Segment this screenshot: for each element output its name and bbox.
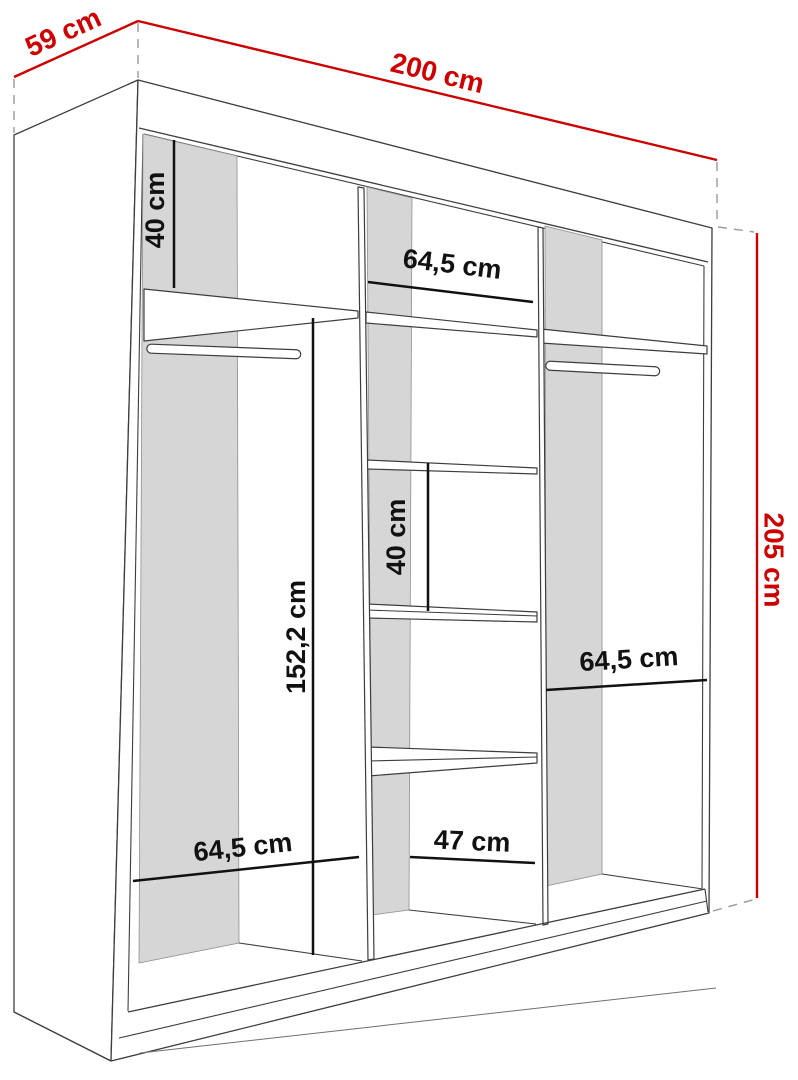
left-top-shelf-gap-label: 40 cm	[140, 172, 170, 249]
middle-bottom-width-label: 47 cm	[433, 824, 511, 857]
height-dimension-label: 205 cm	[759, 513, 790, 608]
wardrobe-dimension-diagram: 59 cm 200 cm 205 cm 40 cm 64,5 cm 152,2 …	[0, 0, 798, 1080]
middle-shelf-gap-label: 40 cm	[381, 499, 411, 576]
extension-height-bottom	[713, 899, 756, 911]
extension-height-top	[718, 227, 754, 232]
wardrobe-body	[14, 80, 716, 1061]
right-back-panel	[545, 226, 602, 886]
depth-dimension-label: 59 cm	[21, 2, 106, 63]
width-dimension-label: 200 cm	[388, 47, 488, 99]
diagram-canvas: 59 cm 200 cm 205 cm 40 cm 64,5 cm 152,2 …	[0, 0, 798, 1080]
right-section-width-label: 64,5 cm	[579, 641, 680, 677]
left-hanging-height-label: 152,2 cm	[281, 580, 311, 694]
